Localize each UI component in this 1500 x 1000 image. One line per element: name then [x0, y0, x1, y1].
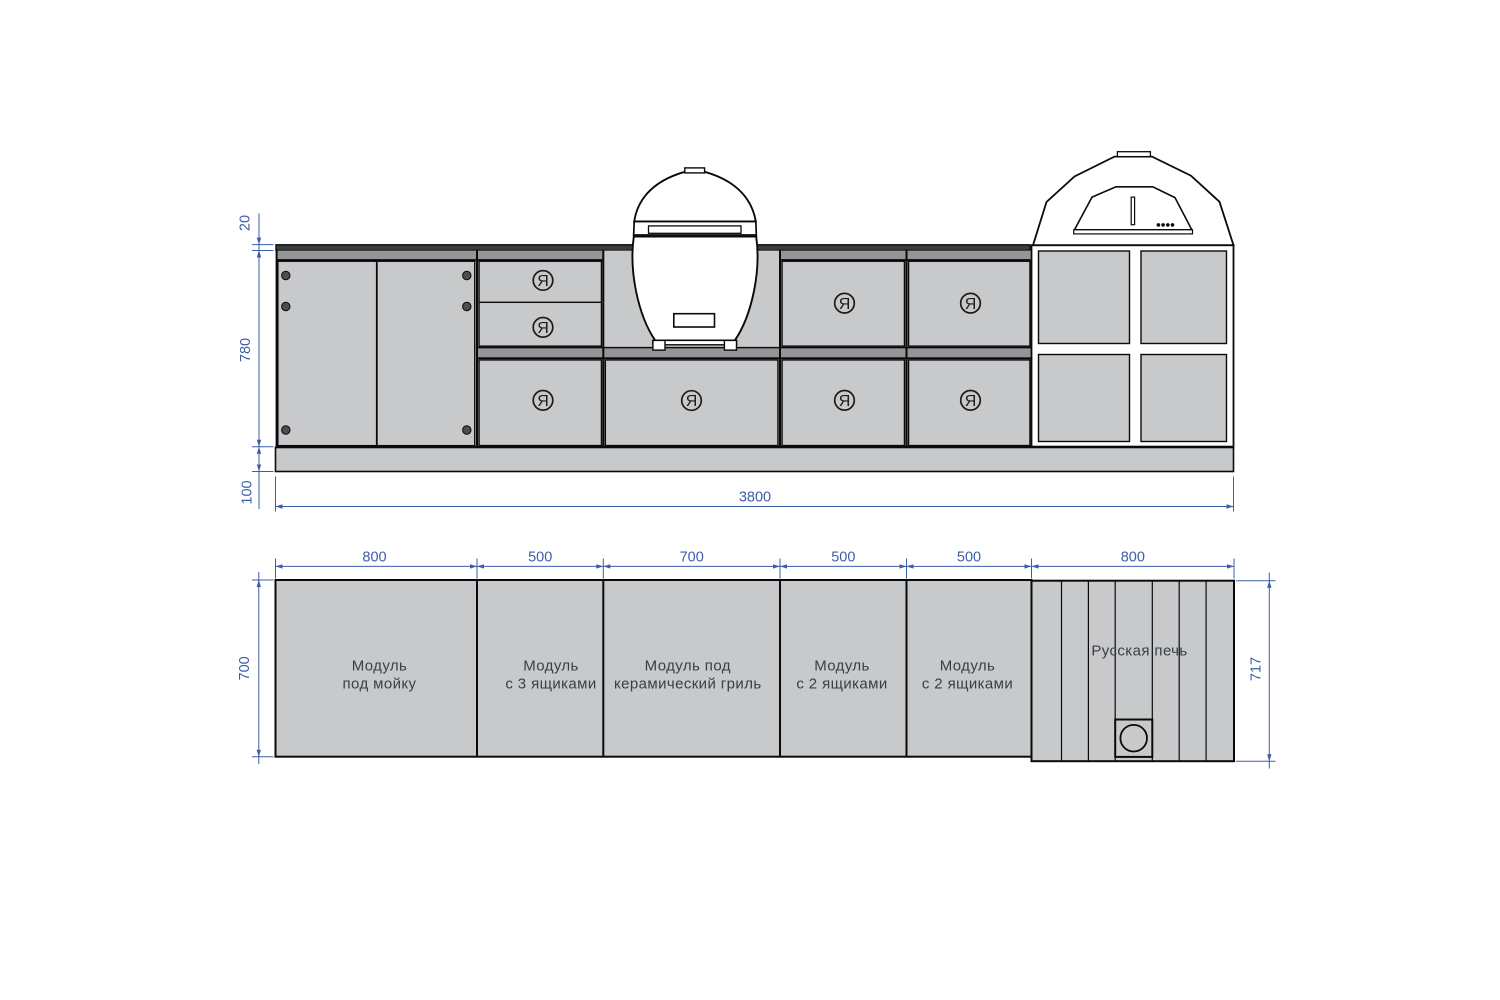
svg-text:Я: Я: [537, 273, 549, 290]
svg-text:717: 717: [1249, 657, 1265, 681]
svg-text:с 2 ящиками: с 2 ящиками: [796, 675, 887, 692]
svg-text:Я: Я: [537, 320, 549, 337]
svg-text:Я: Я: [537, 393, 549, 410]
svg-text:700: 700: [680, 550, 704, 566]
svg-text:Я: Я: [965, 296, 977, 313]
svg-text:3800: 3800: [739, 490, 771, 506]
svg-text:Русская печь: Русская печь: [1091, 643, 1187, 660]
svg-text:500: 500: [957, 550, 981, 566]
svg-text:Модуль: Модуль: [523, 658, 579, 675]
svg-text:Модуль: Модуль: [814, 658, 870, 675]
svg-text:Модуль под: Модуль под: [645, 658, 731, 675]
svg-text:780: 780: [238, 338, 254, 362]
svg-text:Я: Я: [965, 393, 977, 410]
svg-text:Я: Я: [839, 296, 851, 313]
svg-text:Я: Я: [839, 393, 851, 410]
svg-text:20: 20: [238, 215, 254, 231]
svg-text:800: 800: [1121, 550, 1145, 566]
svg-text:керамический гриль: керамический гриль: [614, 675, 762, 692]
svg-text:с 3 ящиками: с 3 ящиками: [505, 675, 596, 692]
svg-text:под мойку: под мойку: [343, 675, 417, 692]
svg-text:Модуль: Модуль: [352, 658, 408, 675]
svg-text:с 2 ящиками: с 2 ящиками: [922, 675, 1013, 692]
svg-text:100: 100: [240, 480, 256, 504]
svg-text:500: 500: [831, 550, 855, 566]
svg-text:500: 500: [528, 550, 552, 566]
svg-text:Модуль: Модуль: [940, 658, 996, 675]
svg-text:800: 800: [362, 550, 386, 566]
svg-text:Я: Я: [686, 393, 698, 410]
svg-text:700: 700: [237, 656, 253, 680]
